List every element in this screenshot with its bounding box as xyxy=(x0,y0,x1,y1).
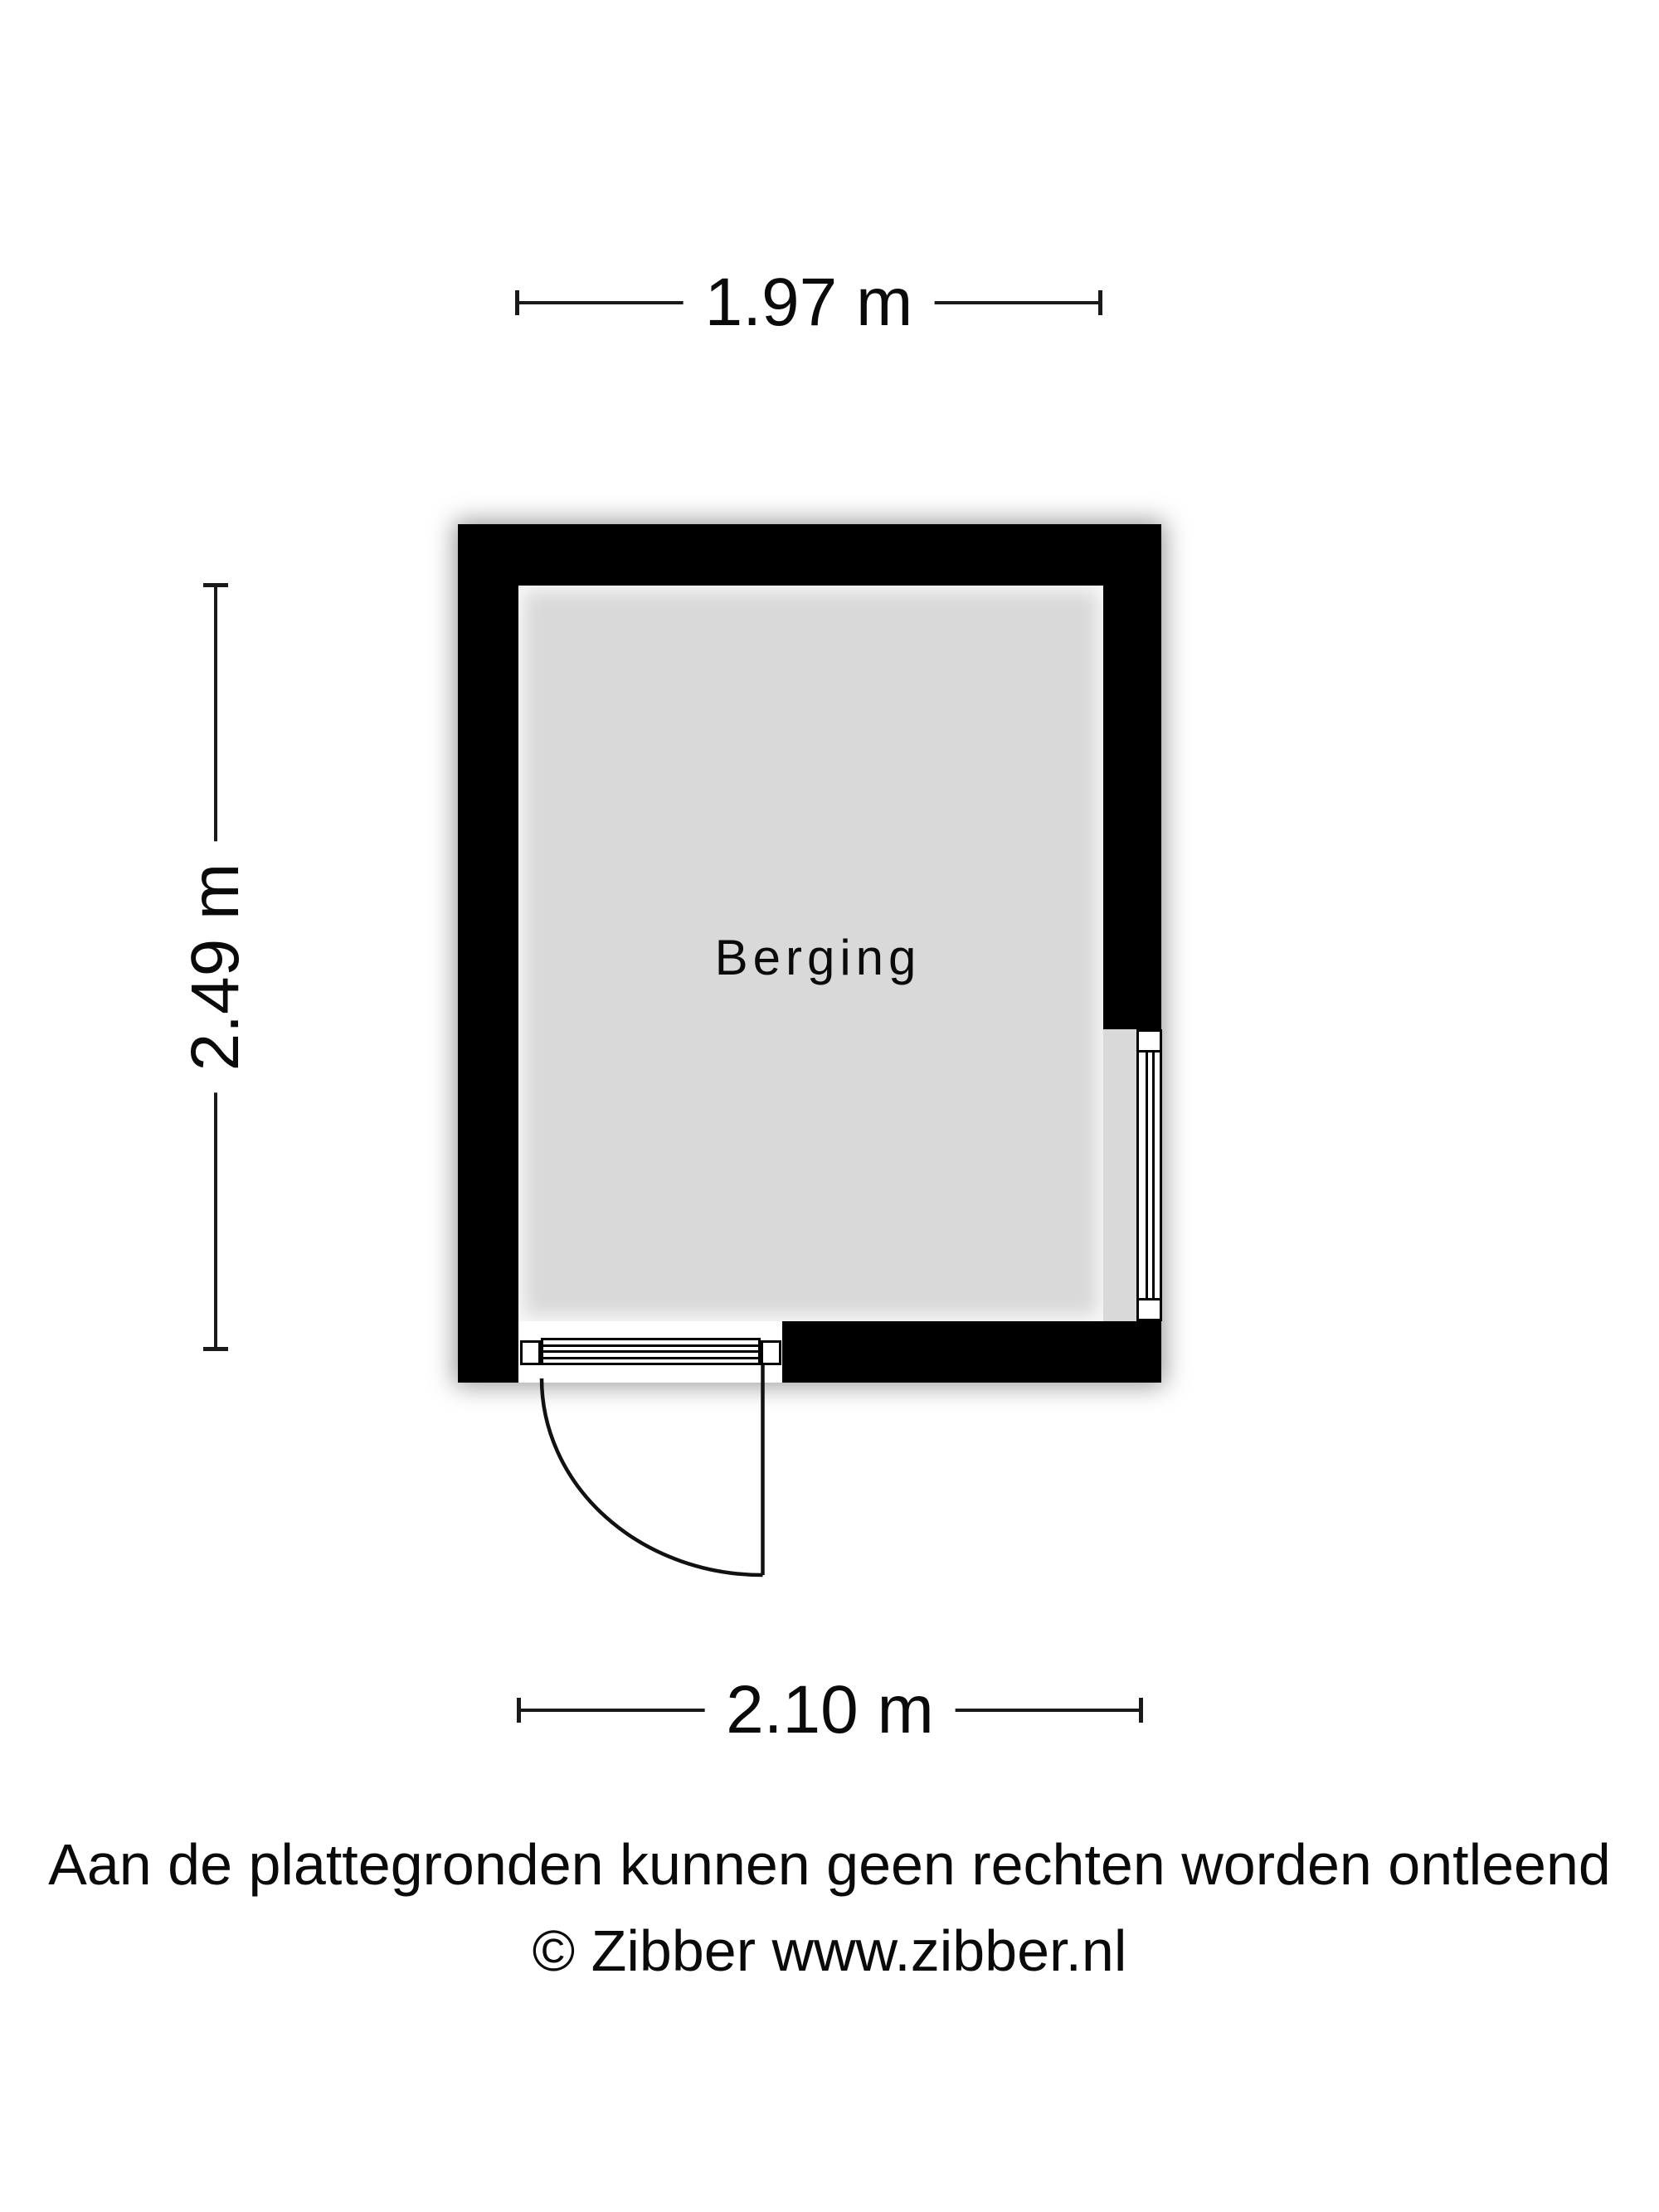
window-frame-cap xyxy=(1139,1032,1160,1053)
window-pane-line xyxy=(1152,1053,1155,1298)
door-frame-post xyxy=(761,1340,781,1365)
door-threshold xyxy=(541,1338,761,1365)
window-pane-line xyxy=(1146,1053,1148,1298)
dimension-top: 1.97 m xyxy=(517,301,1101,304)
floorplan-canvas: 1.97 m 2.49 m Berging xyxy=(0,0,1659,2212)
door-opening xyxy=(518,1321,782,1383)
dimension-left-label: 2.49 m xyxy=(182,842,250,1093)
dimension-left: 2.49 m xyxy=(214,585,217,1349)
dimension-tick xyxy=(203,583,228,587)
room-label: Berging xyxy=(715,933,922,983)
dimension-tick xyxy=(1098,290,1102,315)
window-glazing xyxy=(1139,1053,1160,1298)
copyright-text: © Zibber www.zibber.nl xyxy=(0,1916,1659,1986)
window xyxy=(1136,1029,1162,1321)
door-swing-arc xyxy=(542,1378,763,1575)
threshold-line xyxy=(543,1344,758,1347)
room-floor-window-recess xyxy=(1103,1029,1138,1321)
dimension-top-label: 1.97 m xyxy=(684,269,935,337)
dimension-bottom: 2.10 m xyxy=(518,1709,1141,1712)
dimension-tick xyxy=(203,1347,228,1351)
threshold-line xyxy=(543,1357,758,1359)
dimension-tick xyxy=(517,1698,521,1723)
dimension-bottom-label: 2.10 m xyxy=(704,1676,956,1744)
threshold-line xyxy=(543,1350,758,1353)
dimension-tick xyxy=(515,290,519,315)
disclaimer-text: Aan de plattegronden kunnen geen rechten… xyxy=(0,1830,1659,1899)
door-frame-post xyxy=(520,1340,541,1365)
window-frame-cap xyxy=(1139,1298,1160,1319)
dimension-tick xyxy=(1139,1698,1143,1723)
